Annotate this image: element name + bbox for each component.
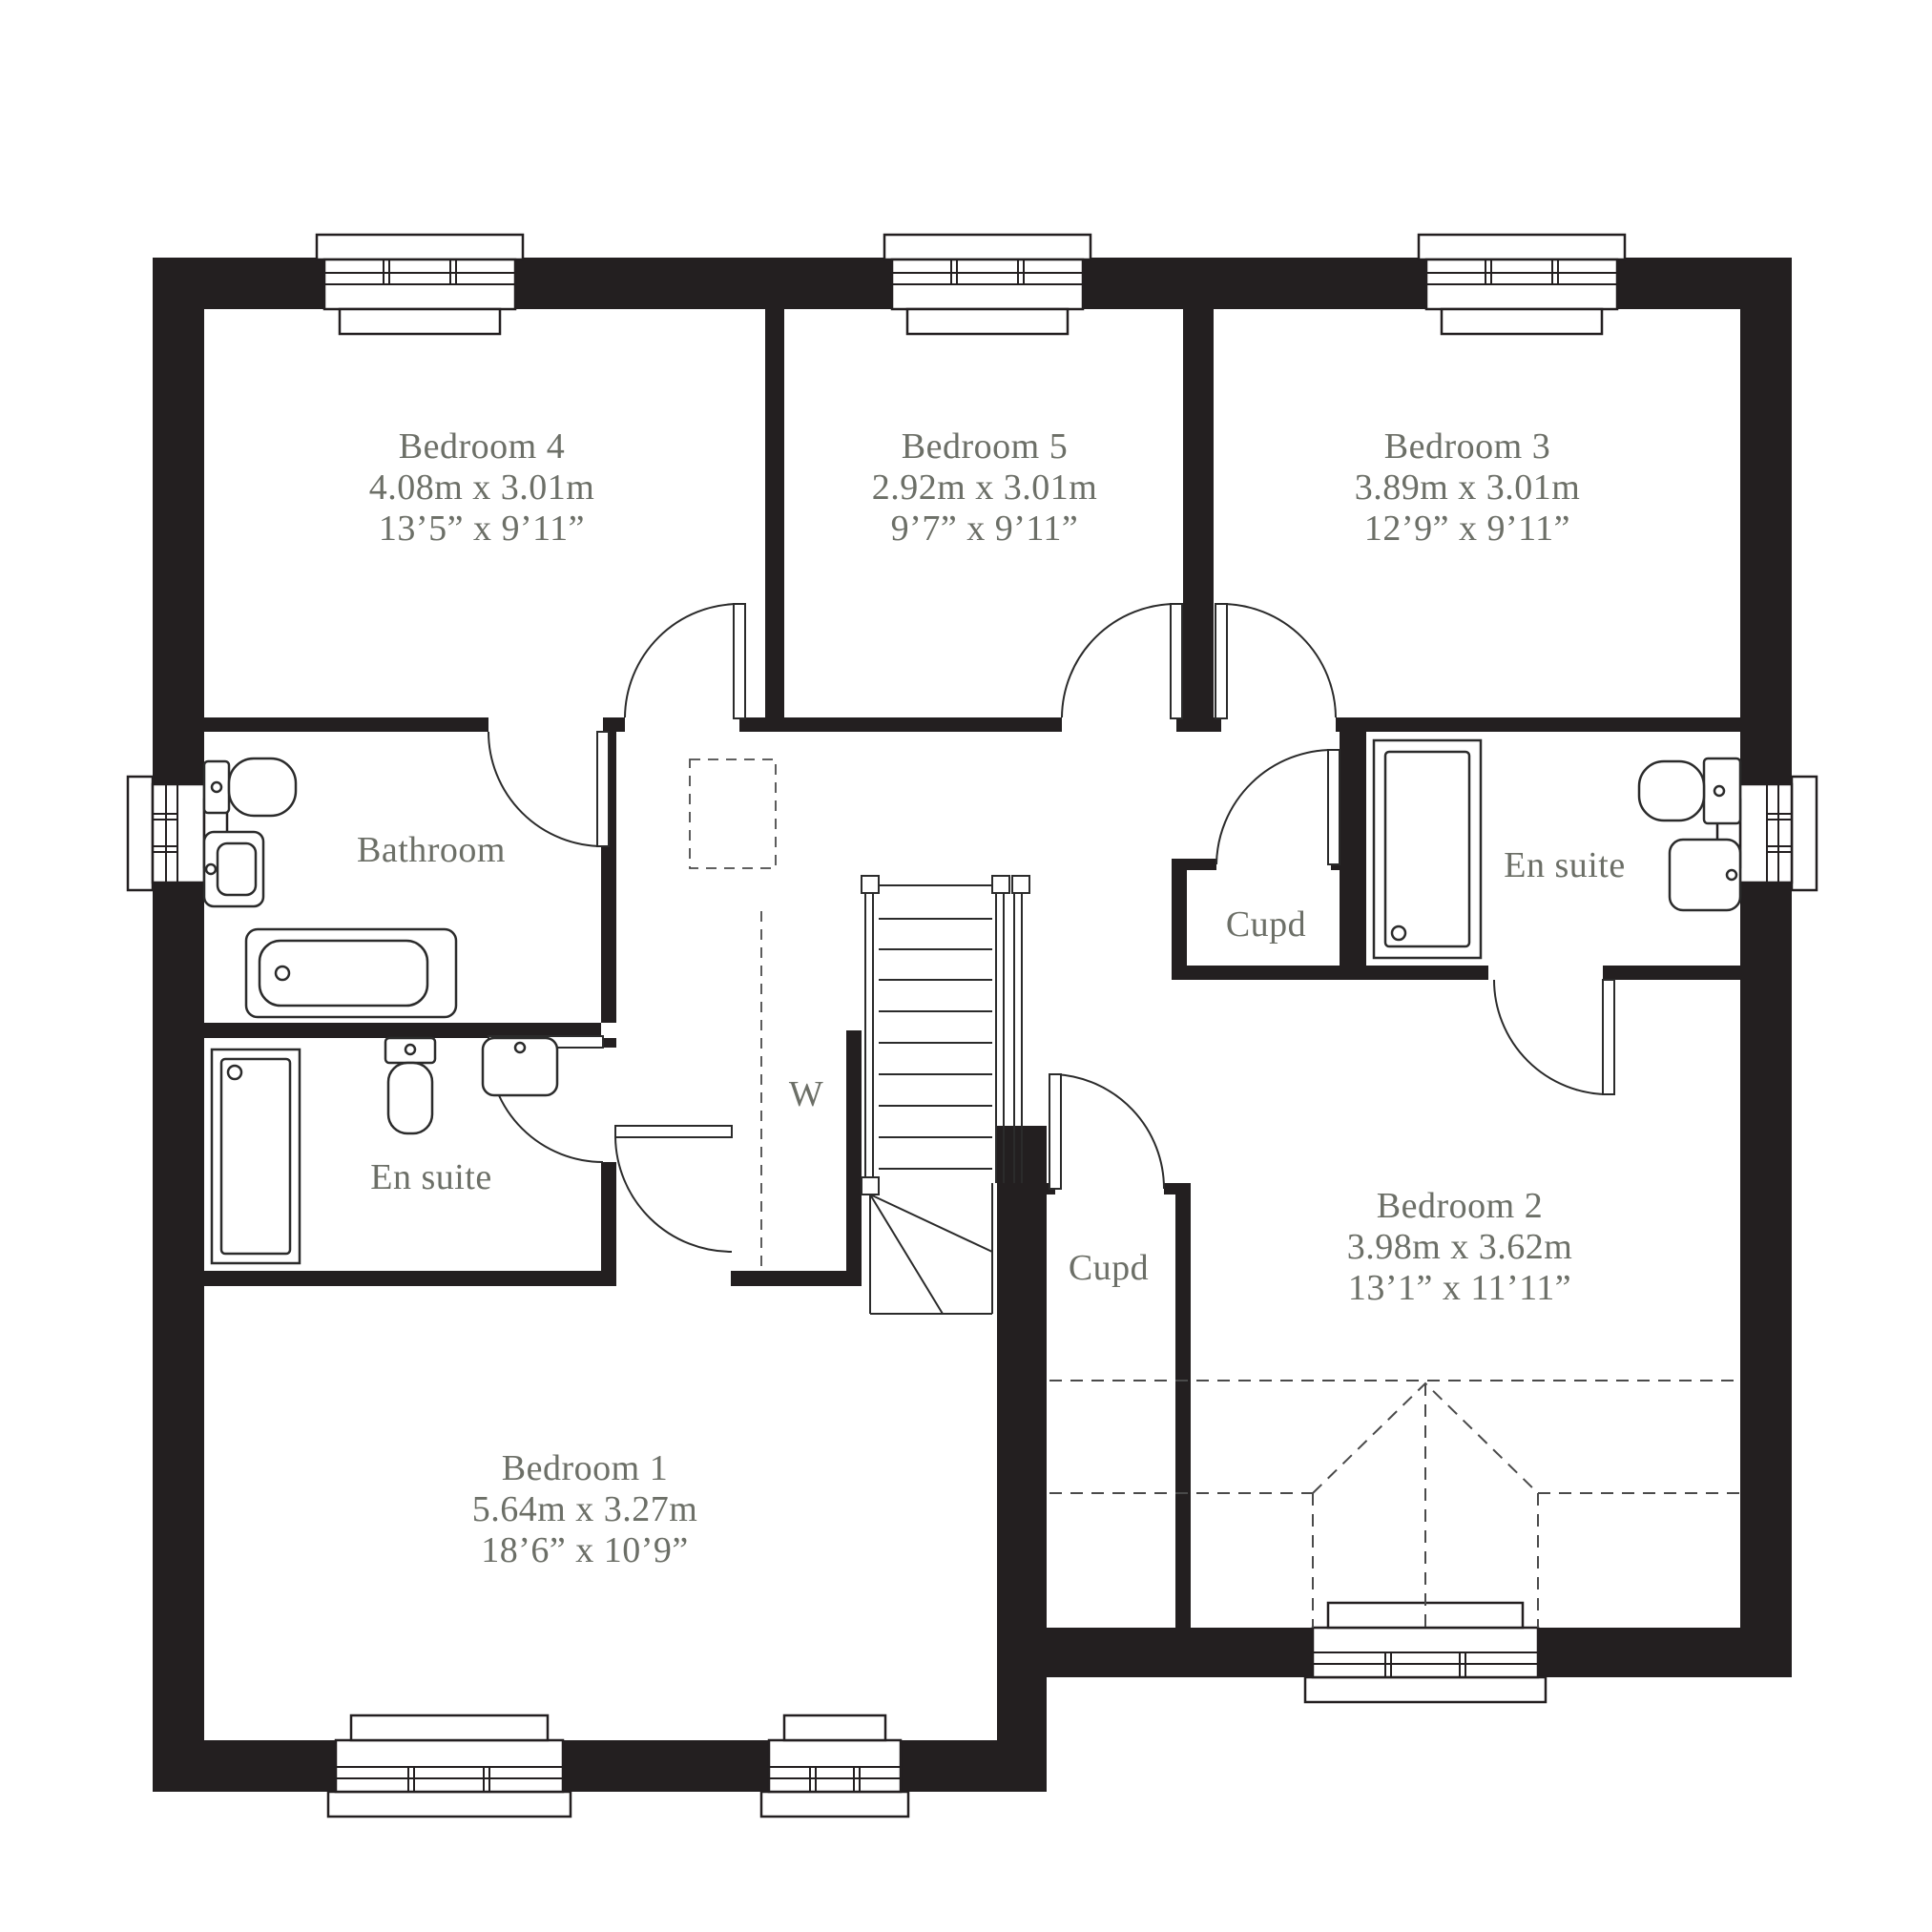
door-bedroom5: [1062, 604, 1182, 732]
room-dim-imperial-bedroom3: 12’9” x 9’11”: [1364, 509, 1570, 549]
room-name-bedroom5: Bedroom 5: [902, 426, 1068, 467]
window-bedroom3: [1419, 235, 1625, 334]
label-bedroom3: Bedroom 3 3.89m x 3.01m 12’9” x 9’11”: [1355, 426, 1581, 549]
sink-ensuite-left: [483, 1038, 557, 1095]
room-labels: Bedroom 4 4.08m x 3.01m 13’5” x 9’11” Be…: [357, 426, 1626, 1570]
wall-bottom-left: [153, 1740, 1047, 1792]
room-dim-metric-bedroom5: 2.92m x 3.01m: [872, 467, 1098, 508]
wall-cupd1-top-a: [1172, 859, 1216, 870]
window-bedroom1-b: [761, 1715, 908, 1817]
door-ensuite-right: [1488, 966, 1614, 1094]
sink-ensuite-right: [1670, 840, 1740, 910]
door-bedroom1: [615, 1126, 732, 1286]
label-bedroom5: Bedroom 5 2.92m x 3.01m 9’7” x 9’11”: [872, 426, 1098, 549]
room-dim-metric-bedroom3: 3.89m x 3.01m: [1355, 467, 1581, 508]
room-name-bedroom2: Bedroom 2: [1377, 1186, 1543, 1226]
label-bedroom4: Bedroom 4 4.08m x 3.01m 13’5” x 9’11”: [369, 426, 595, 549]
wall-hall-e: [1336, 717, 1740, 732]
door-cupd-lower: [1049, 1074, 1164, 1195]
room-name-ensuite-left: En suite: [370, 1157, 491, 1197]
toilet-ensuite-left: [385, 1038, 435, 1133]
wall-cupd1-left: [1172, 870, 1187, 980]
label-bedroom2: Bedroom 2 3.98m x 3.62m 13’1” x 11’11”: [1347, 1186, 1573, 1308]
wall-left: [153, 258, 204, 1792]
wall-hall-b: [603, 717, 625, 732]
newel-post: [862, 876, 879, 893]
door-bedroom3: [1215, 604, 1336, 732]
toilet-bathroom: [204, 758, 296, 816]
toilet-ensuite-right: [1639, 758, 1740, 823]
room-name-wardrobe: W: [789, 1074, 823, 1114]
room-dim-metric-bedroom4: 4.08m x 3.01m: [369, 467, 595, 508]
room-name-bathroom: Bathroom: [357, 830, 506, 870]
bathtub: [246, 929, 456, 1017]
wall-ensuite2-bottom-a: [1366, 966, 1488, 980]
wall-divider-bed1-bed2: [997, 1126, 1047, 1792]
window-bedroom5: [884, 235, 1091, 334]
room-dim-imperial-bedroom5: 9’7” x 9’11”: [891, 509, 1079, 549]
room-name-cupd-upper: Cupd: [1226, 904, 1306, 945]
wall-bed5-bed3: [1183, 309, 1214, 717]
room-name-bedroom3: Bedroom 3: [1384, 426, 1550, 467]
door-bathroom: [488, 717, 609, 846]
window-bedroom4: [317, 235, 523, 334]
wall-ensuite-bottom-a: [204, 1271, 616, 1286]
wall-hall-a: [204, 717, 488, 732]
room-name-bedroom1: Bedroom 1: [502, 1448, 668, 1488]
room-name-cupd-lower: Cupd: [1069, 1248, 1149, 1288]
wall-ensuite-bottom-b: [731, 1271, 861, 1286]
sink-bathroom: [204, 832, 263, 906]
wall-stairs-left: [846, 1030, 862, 1286]
room-dim-imperial-bedroom2: 13’1” x 11’11”: [1348, 1268, 1571, 1308]
door-bedroom4: [625, 604, 745, 732]
room-dim-imperial-bedroom1: 18’6” x 10’9”: [481, 1530, 689, 1570]
room-dim-metric-bedroom1: 5.64m x 3.27m: [472, 1489, 698, 1529]
floor-plan-drawing: Bedroom 4 4.08m x 3.01m 13’5” x 9’11” Be…: [0, 0, 1932, 1932]
shower-ensuite-left: [212, 1049, 300, 1263]
wall-ensuite2-bottom-b: [1603, 966, 1740, 980]
label-bedroom1: Bedroom 1 5.64m x 3.27m 18’6” x 10’9”: [472, 1448, 698, 1570]
floor-plan-page: Bedroom 4 4.08m x 3.01m 13’5” x 9’11” Be…: [0, 0, 1932, 1932]
wall-hall-c: [739, 717, 1062, 732]
wall-cupd1-bottom: [1172, 966, 1366, 980]
bedroom2-ceiling-lines: [1049, 1381, 1740, 1628]
wall-hall-d: [1176, 717, 1221, 732]
room-name-bedroom4: Bedroom 4: [399, 426, 565, 467]
room-name-ensuite-right: En suite: [1504, 845, 1625, 885]
shower-ensuite-right: [1374, 740, 1481, 958]
newel-post: [1012, 876, 1029, 893]
window-bedroom1-a: [328, 1715, 571, 1817]
wall-right: [1740, 258, 1792, 1677]
wall-ensuite-right-lower: [601, 1162, 616, 1271]
wall-cupd2-right: [1175, 1183, 1191, 1628]
room-dim-imperial-bedroom4: 13’5” x 9’11”: [379, 509, 585, 549]
wall-ensuite2-left: [1340, 732, 1366, 966]
door-cupd-upper: [1216, 750, 1340, 870]
loft-hatch: [690, 759, 776, 868]
room-dim-metric-bedroom2: 3.98m x 3.62m: [1347, 1227, 1573, 1267]
newel-post: [992, 876, 1009, 893]
newel-post: [862, 1177, 879, 1195]
wall-bed4-bed5: [765, 309, 784, 717]
